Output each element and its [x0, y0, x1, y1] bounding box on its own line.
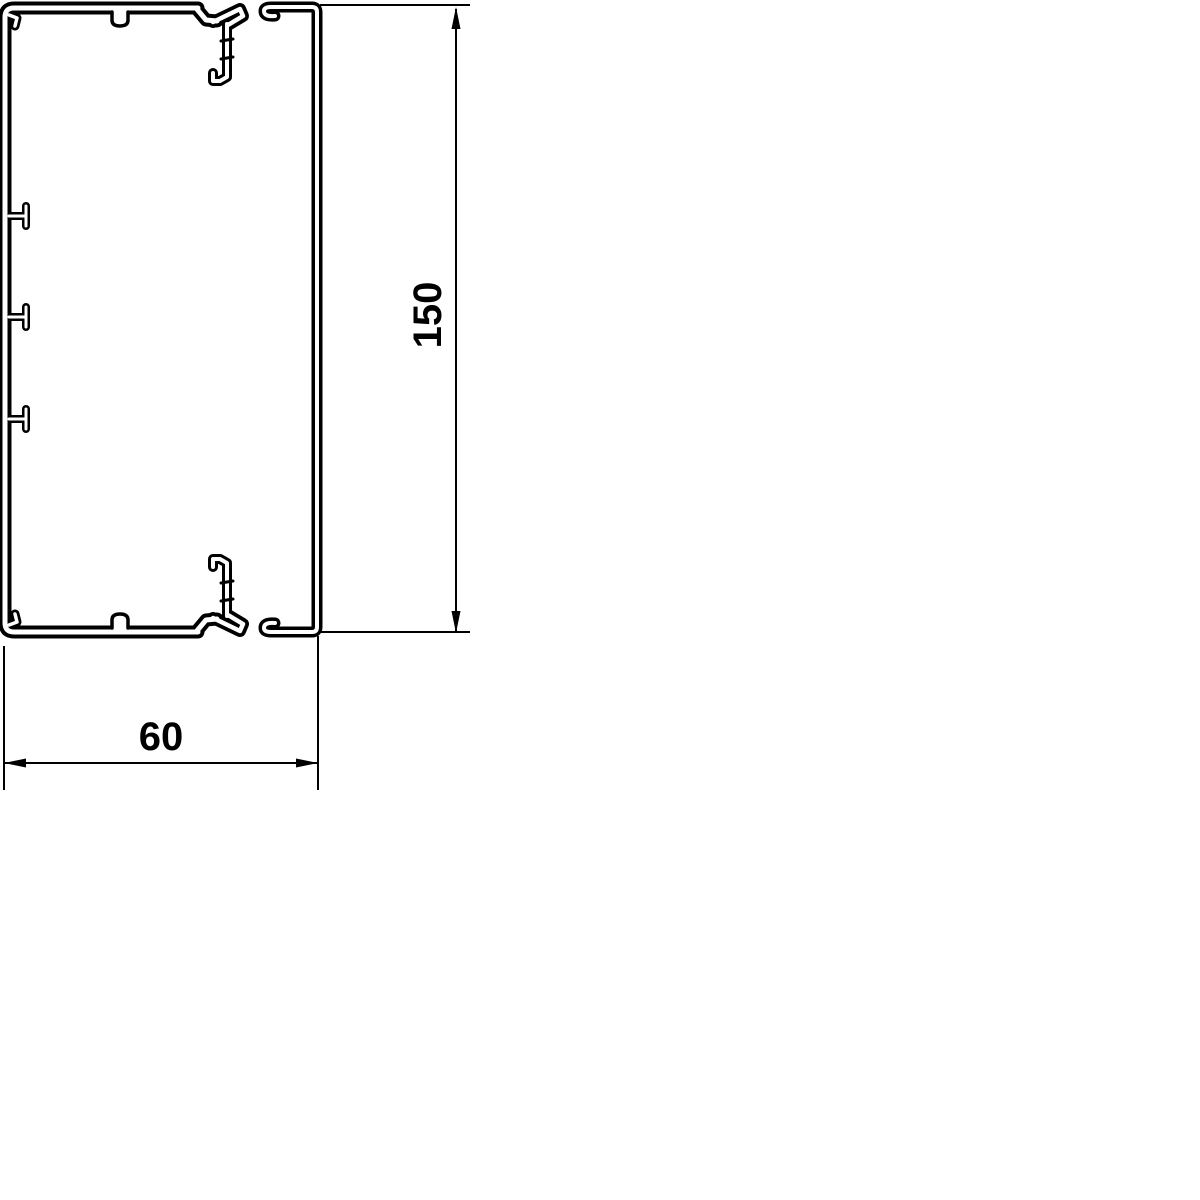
trunking-base-profile-black: [0, 7, 317, 632]
arrow-right-icon: [296, 759, 318, 768]
technical-drawing: 150 60: [0, 0, 1200, 1200]
base-channel-wall: [5, 8, 198, 632]
dimension-lines: [4, 5, 470, 790]
base-top-strut: [213, 24, 227, 81]
arrow-up-icon: [452, 7, 461, 29]
trunking-profiles-core: [5, 7, 317, 632]
drawing-canvas: 150 60: [0, 0, 1200, 1200]
arrow-left-icon: [4, 759, 26, 768]
strut-hatch-marks: [221, 39, 233, 601]
dimension-annotations: 150 60: [4, 5, 470, 790]
dimension-arrows: [4, 7, 461, 768]
base-clip-channels: [112, 8, 128, 632]
height-dimension-label: 150: [406, 282, 450, 349]
width-dimension-label: 60: [139, 715, 184, 759]
arrow-down-icon: [452, 611, 461, 633]
base-bottom-strut: [213, 559, 227, 616]
trunking-cover-profile: [264, 7, 317, 632]
